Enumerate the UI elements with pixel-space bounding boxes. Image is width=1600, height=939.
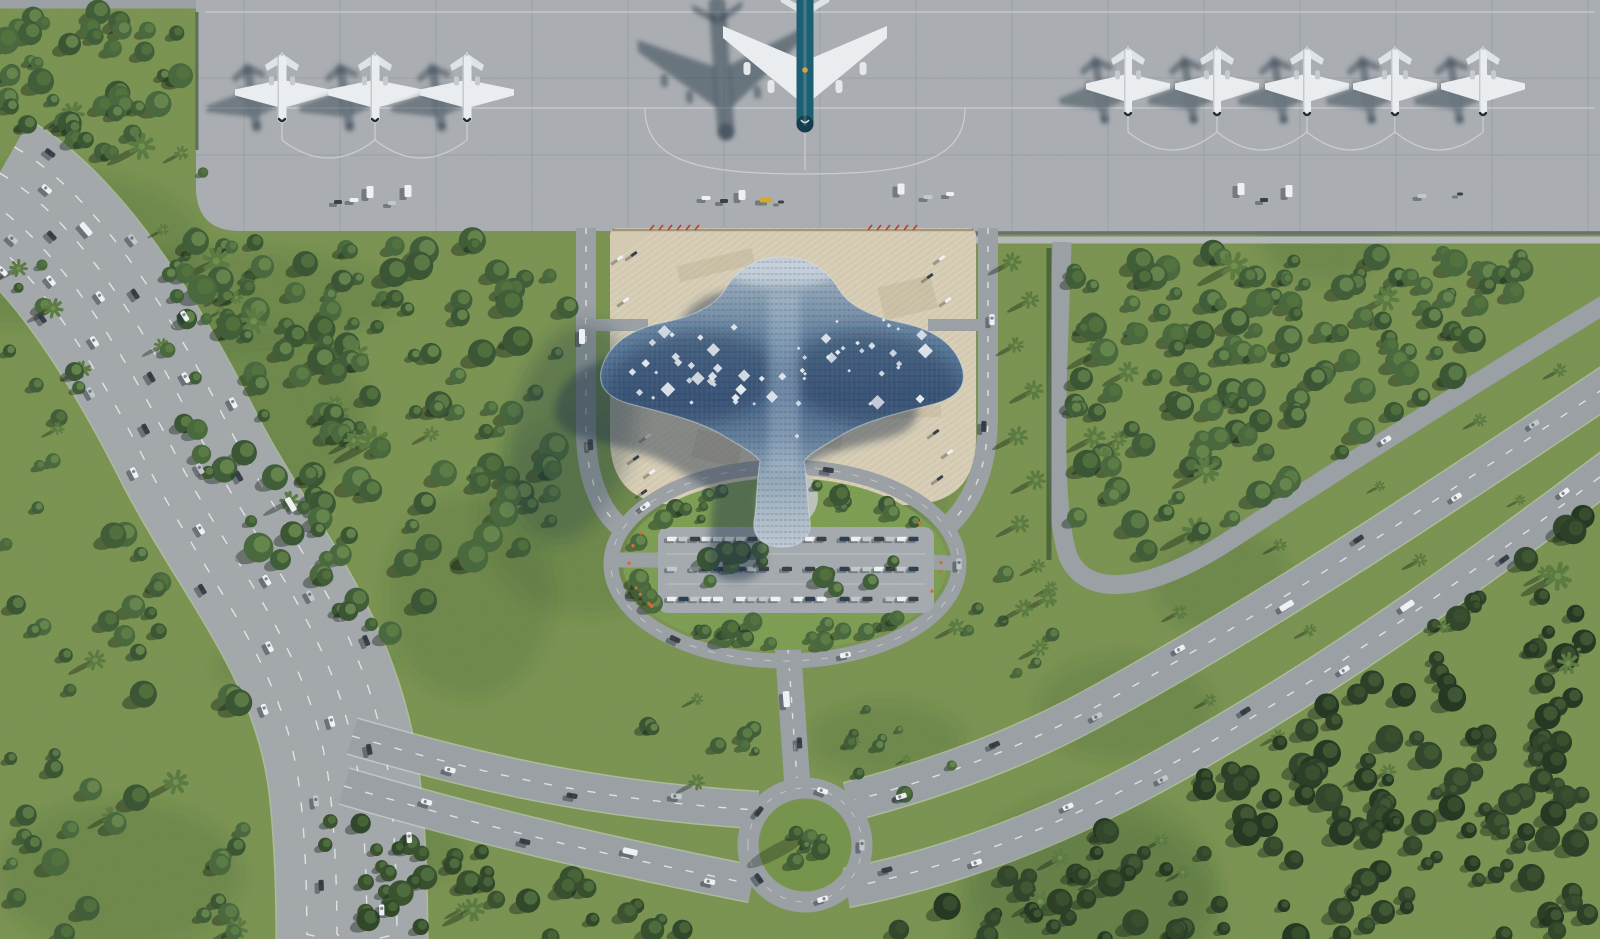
airport-aerial-rendering <box>0 0 1600 939</box>
scene-canvas <box>0 0 1600 939</box>
film-grain <box>0 0 1600 939</box>
